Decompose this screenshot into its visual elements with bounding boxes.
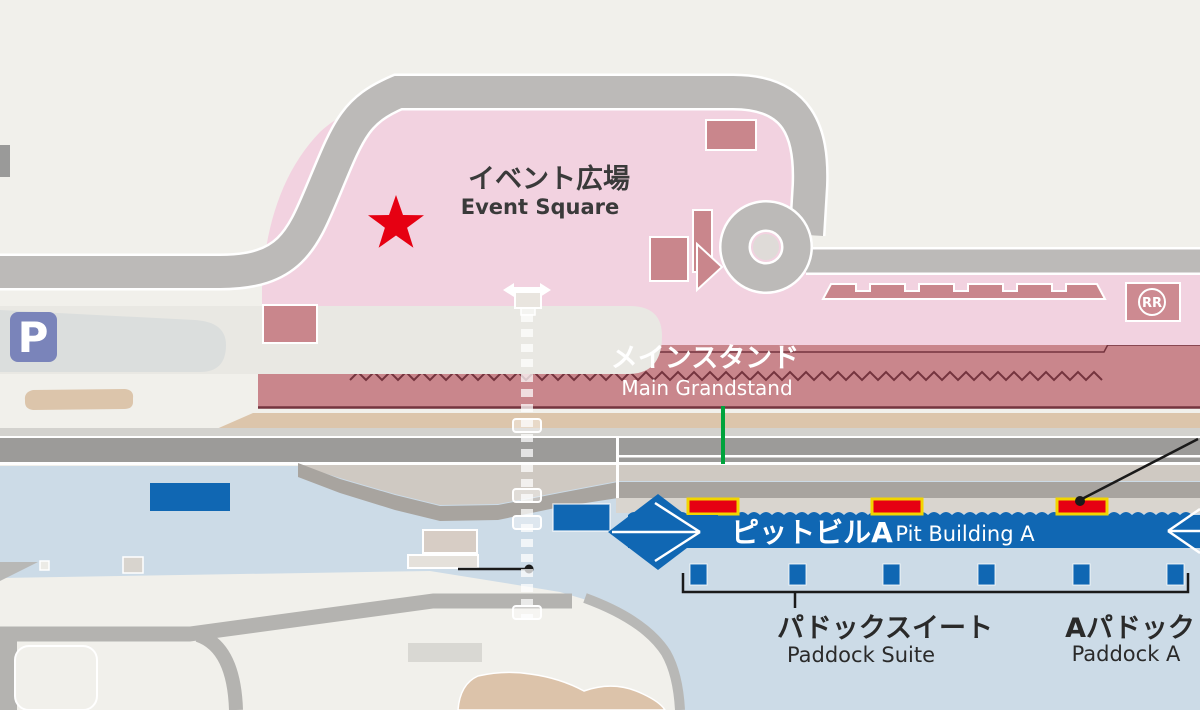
pit-building-label-en: Pit Building A — [895, 522, 1035, 546]
event-building-north — [706, 120, 756, 150]
small-hut — [40, 561, 49, 570]
crossing-waypoint — [513, 606, 541, 619]
event-square-label-en: Event Square — [461, 195, 619, 219]
pit-building-label-ja: ピットビルA — [731, 516, 893, 549]
circuit-area-map: P RR — [0, 0, 1200, 710]
paddock-a-label-en: Paddock A — [1072, 642, 1181, 666]
main-straight-track — [0, 438, 1200, 463]
paddock-a-label-ja: Aパドック — [1065, 613, 1195, 644]
pit-signal-marker — [688, 499, 738, 514]
gate-green-line — [721, 406, 725, 464]
track-line-bottom — [0, 462, 1200, 465]
pillar — [1167, 564, 1184, 585]
parking-badge-label: P — [18, 313, 49, 362]
main-grandstand-label-ja: メインスタンド — [611, 343, 799, 374]
track-verge — [0, 428, 1200, 437]
pillar — [883, 564, 900, 585]
road-platform — [408, 643, 482, 662]
pillar — [789, 564, 806, 585]
paddock-suite-label-en: Paddock Suite — [787, 643, 935, 667]
pit-signal-marker — [872, 499, 922, 514]
tan-promenade — [253, 413, 1200, 428]
main-grandstand-label-en: Main Grandstand — [621, 376, 792, 400]
leader-dot — [1075, 496, 1085, 506]
pillar — [1073, 564, 1090, 585]
event-square-label-ja: イベント広場 — [468, 163, 630, 195]
crossing-waypoint — [513, 516, 541, 529]
event-building-center — [650, 237, 688, 281]
small-building-3 — [123, 557, 143, 573]
restroom-badge-label: RR — [1142, 296, 1162, 311]
blue-facility-pit-entry — [553, 504, 610, 531]
crossing-waypoint — [513, 419, 541, 432]
pillar — [690, 564, 707, 585]
track-lane-line — [619, 455, 1200, 458]
paddock-suite-label-ja: パドックスイート — [777, 613, 993, 644]
tan-path-west — [25, 389, 133, 410]
pillar — [978, 564, 995, 585]
cul-de-sac-island — [753, 234, 779, 260]
west-road-stub — [0, 145, 10, 177]
start-finish-line — [616, 438, 619, 498]
small-building-1 — [423, 530, 477, 553]
map-canvas: P RR — [0, 0, 1200, 710]
blue-facility-west — [150, 483, 230, 511]
event-building-west — [263, 305, 317, 343]
corner-island — [15, 646, 97, 710]
small-building-2 — [408, 555, 478, 568]
crossing-waypoint — [513, 489, 541, 502]
